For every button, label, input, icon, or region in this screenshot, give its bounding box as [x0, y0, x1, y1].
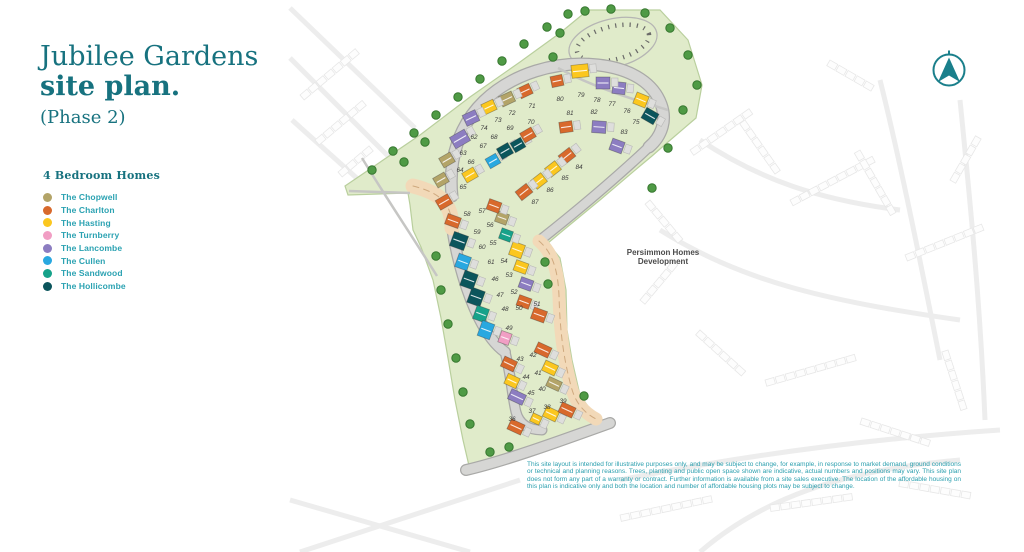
plot-78-number: 78 [593, 97, 601, 104]
tree-icon [679, 106, 687, 114]
tree-icon [454, 93, 462, 101]
plot-79-number: 79 [577, 92, 585, 99]
tree-icon [684, 51, 692, 59]
plot-71-number: 71 [528, 103, 536, 110]
legend-item-label: The Lancombe [61, 243, 122, 253]
plot-68-number: 68 [490, 134, 498, 141]
legend-items: The ChopwellThe CharltonThe HastingThe T… [43, 191, 160, 293]
tree-icon [368, 166, 376, 174]
plot-77-number: 77 [608, 101, 616, 108]
plot-49-number: 49 [505, 325, 513, 332]
legend-swatch-icon [43, 218, 52, 227]
legend-swatch-icon [43, 231, 52, 240]
plot-48-number: 48 [501, 306, 509, 313]
plot-47-number: 47 [496, 292, 504, 299]
plot-42-number: 42 [529, 352, 537, 359]
legend-item-label: The Chopwell [61, 192, 117, 202]
plot-41-number: 41 [534, 370, 542, 377]
plot-72-number: 72 [508, 110, 516, 117]
tree-icon [400, 158, 408, 166]
tree-icon [466, 420, 474, 428]
tree-icon [421, 138, 429, 146]
legend-swatch-icon [43, 269, 52, 278]
plot-74-number: 74 [480, 125, 488, 132]
disclaimer-text: This site layout is intended for illustr… [527, 461, 961, 491]
tree-icon [444, 320, 452, 328]
plot-87-number: 87 [531, 199, 539, 206]
plot-85-number: 85 [561, 175, 569, 182]
plot-59-number: 59 [473, 229, 481, 236]
tree-icon [520, 40, 528, 48]
legend-item-chopwell: The Chopwell [43, 191, 160, 204]
north-arrow-icon [929, 48, 969, 90]
legend-item-label: The Sandwood [61, 268, 123, 278]
tree-icon [541, 258, 549, 266]
plot-73-number: 73 [494, 117, 502, 124]
title-block: Jubilee Gardens site plan. (Phase 2) [40, 42, 258, 131]
plot-76-number: 76 [623, 108, 631, 115]
plot-63-number: 63 [459, 150, 467, 157]
plot-67-number: 67 [479, 143, 487, 150]
plot-54-number: 54 [500, 258, 508, 265]
legend-item-lancombe: The Lancombe [43, 242, 160, 255]
page-title-line2: site plan. [40, 72, 258, 102]
plot-80-number: 80 [556, 96, 564, 103]
plot-45-number: 45 [527, 390, 535, 397]
plot-86-number: 86 [546, 187, 554, 194]
plot-53-number: 53 [505, 272, 513, 279]
plot-36-number: 36 [508, 416, 516, 423]
plot-40-number: 40 [538, 386, 546, 393]
tree-icon [556, 29, 564, 37]
tree-icon [544, 280, 552, 288]
legend-item-label: The Hollicombe [61, 281, 126, 291]
tree-icon [498, 57, 506, 65]
tree-icon [641, 9, 649, 17]
plot-66-number: 66 [467, 159, 475, 166]
tree-icon [389, 147, 397, 155]
plot-82-number: 82 [590, 109, 598, 116]
adjacent-development-label: Persimmon HomesDevelopment [601, 249, 725, 266]
tree-icon [549, 53, 557, 61]
legend: 4 Bedroom Homes The ChopwellThe Charlton… [43, 169, 160, 293]
legend-item-label: The Hasting [61, 218, 111, 228]
legend-item-label: The Charlton [61, 205, 115, 215]
tree-icon [505, 443, 513, 451]
plot-58-number: 58 [463, 211, 471, 218]
tree-icon [581, 7, 589, 15]
plot-52-number: 52 [510, 289, 518, 296]
tree-icon [486, 448, 494, 456]
plot-62-number: 62 [470, 134, 478, 141]
plot-75-number: 75 [632, 119, 640, 126]
plot-70-number: 70 [527, 119, 535, 126]
tree-icon [476, 75, 484, 83]
legend-swatch-icon [43, 206, 52, 215]
plot-50-number: 50 [515, 305, 523, 312]
plot-56-number: 56 [486, 222, 494, 229]
plot-65-number: 65 [459, 184, 467, 191]
phase-subtitle: (Phase 2) [40, 105, 258, 131]
legend-swatch-icon [43, 256, 52, 265]
plot-38-number: 38 [543, 404, 551, 411]
plot-51-number: 51 [533, 301, 541, 308]
legend-heading: 4 Bedroom Homes [43, 169, 160, 182]
tree-icon [693, 81, 701, 89]
tree-icon [607, 5, 615, 13]
plot-60-number: 60 [478, 244, 486, 251]
plot-37-number: 37 [528, 408, 536, 415]
legend-item-label: The Cullen [61, 256, 105, 266]
legend-swatch-icon [43, 244, 52, 253]
plot-39-number: 39 [559, 398, 567, 405]
plot-83-number: 83 [620, 129, 628, 136]
plot-55-number: 55 [489, 240, 497, 247]
tree-icon [648, 184, 656, 192]
tree-icon [564, 10, 572, 18]
tree-icon [432, 111, 440, 119]
tree-icon [410, 129, 418, 137]
site-plan-page: 3637383940414243444546474849505152535455… [0, 0, 1024, 552]
legend-item-sandwood: The Sandwood [43, 267, 160, 280]
legend-item-turnberry: The Turnberry [43, 229, 160, 242]
plot-69-number: 69 [506, 125, 514, 132]
plot-43-number: 43 [516, 356, 524, 363]
tree-icon [437, 286, 445, 294]
tree-icon [459, 388, 467, 396]
plot-44-number: 44 [522, 374, 530, 381]
tree-icon [543, 23, 551, 31]
page-title: Jubilee Gardens [40, 42, 258, 72]
development-label-line: Development [601, 258, 725, 267]
plot-81-number: 81 [566, 110, 574, 117]
legend-item-hasting: The Hasting [43, 216, 160, 229]
tree-icon [432, 252, 440, 260]
tree-icon [580, 392, 588, 400]
legend-swatch-icon [43, 282, 52, 291]
legend-item-charlton: The Charlton [43, 204, 160, 217]
plot-61-number: 61 [487, 259, 495, 266]
plot-57-number: 57 [478, 208, 486, 215]
tree-icon [452, 354, 460, 362]
legend-item-hollicombe: The Hollicombe [43, 280, 160, 293]
plot-46-number: 46 [491, 276, 499, 283]
tree-icon [666, 24, 674, 32]
tree-icon [664, 144, 672, 152]
legend-item-cullen: The Cullen [43, 254, 160, 267]
legend-item-label: The Turnberry [61, 230, 119, 240]
plot-84-number: 84 [575, 164, 583, 171]
legend-swatch-icon [43, 193, 52, 202]
